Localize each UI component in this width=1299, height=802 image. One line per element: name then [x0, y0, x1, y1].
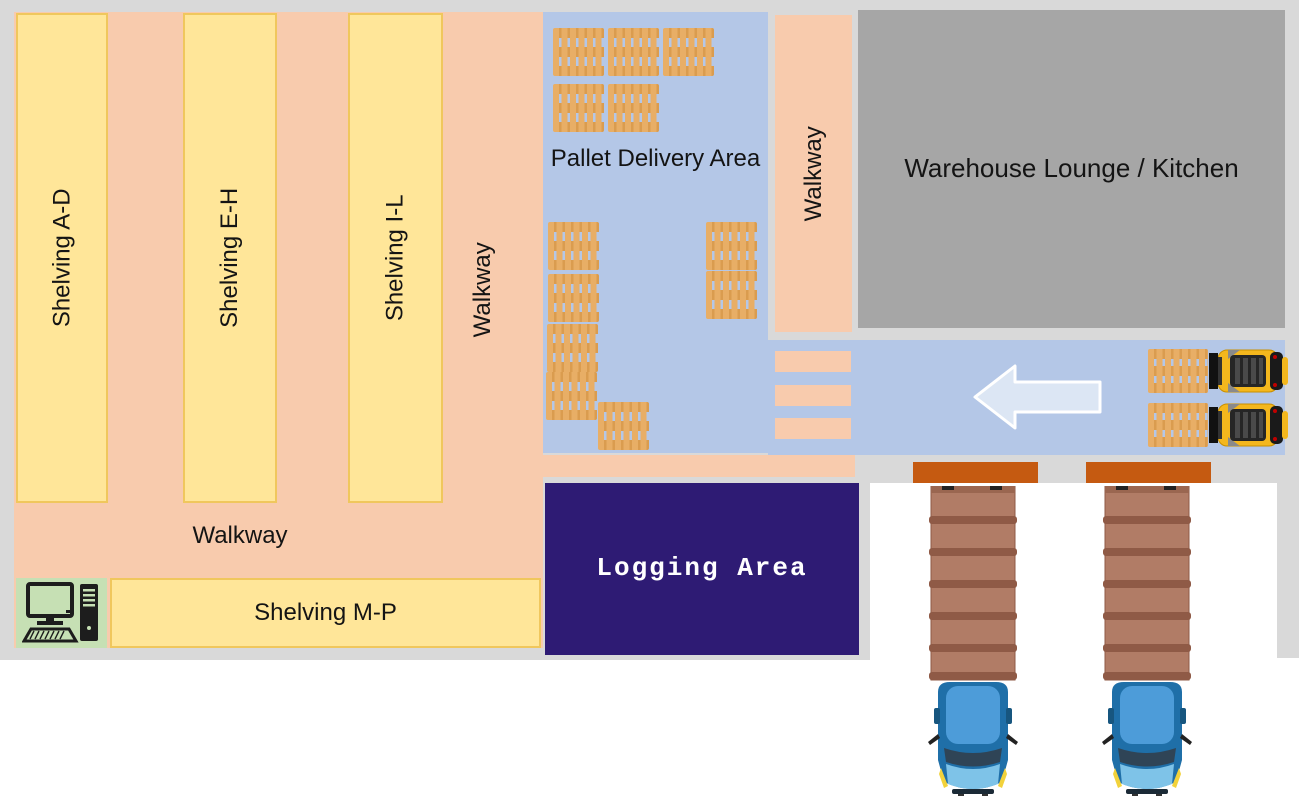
warehouse-frame-dock-strip	[1277, 483, 1299, 658]
pallet-icon	[548, 274, 599, 322]
walkway-left-label-zone: Walkway	[433, 150, 533, 430]
pallet-icon	[553, 84, 604, 132]
pallet-icon	[546, 372, 597, 420]
shelving-a-d-label: Shelving A-D	[48, 189, 76, 328]
area-logging: Logging Area	[545, 483, 859, 655]
forklift-icon	[1204, 402, 1289, 448]
forklift-1	[1148, 348, 1289, 394]
left-arrow-icon	[970, 360, 1105, 435]
truck-icon	[1102, 486, 1192, 796]
lounge-label: Warehouse Lounge / Kitchen	[904, 154, 1238, 184]
truck-icon	[928, 486, 1018, 796]
warehouse-floor-plan: Shelving A-D Shelving E-H Shelving I-L W…	[0, 0, 1299, 802]
shelving-e-h-label: Shelving E-H	[216, 188, 244, 328]
forklift-2	[1148, 402, 1289, 448]
shelving-m-p-label: Shelving M-P	[254, 599, 397, 627]
pallet-icon	[598, 402, 649, 450]
dock-door-1	[913, 462, 1038, 483]
area-shelving-m-p: Shelving M-P	[110, 578, 541, 648]
area-shelving-a-d: Shelving A-D	[16, 13, 108, 503]
logging-computer-station	[16, 578, 107, 648]
pallet-icon	[608, 28, 659, 76]
dock-door-2	[1086, 462, 1211, 483]
pallet-icon	[1148, 349, 1208, 393]
crosswalk-bar	[775, 418, 851, 439]
forklift-icon	[1204, 348, 1289, 394]
shelving-i-l-label: Shelving I-L	[382, 195, 410, 322]
pallet-icon	[706, 222, 757, 270]
walkway-left-label: Walkway	[469, 242, 497, 337]
pallet-icon	[553, 28, 604, 76]
pallet-icon	[1148, 403, 1208, 447]
area-lounge-kitchen: Warehouse Lounge / Kitchen	[858, 10, 1285, 328]
crosswalk-bar	[775, 351, 851, 372]
pallet-icon	[663, 28, 714, 76]
logging-label: Logging Area	[596, 554, 807, 584]
area-shelving-e-h: Shelving E-H	[183, 13, 277, 503]
area-shelving-i-l: Shelving I-L	[348, 13, 443, 503]
pallet-delivery-label: Pallet Delivery Area	[543, 145, 768, 173]
walkway-bottom-label: Walkway	[90, 522, 390, 550]
crosswalk-bar	[775, 385, 851, 406]
pallet-icon	[548, 222, 599, 270]
pallet-icon	[706, 271, 757, 319]
area-walkway-right: Walkway	[775, 15, 852, 332]
pallet-icon	[547, 324, 598, 372]
walkway-south-band	[543, 455, 855, 477]
walkway-right-label: Walkway	[800, 126, 828, 221]
pallet-icon	[608, 84, 659, 132]
computer-icon	[22, 582, 102, 644]
